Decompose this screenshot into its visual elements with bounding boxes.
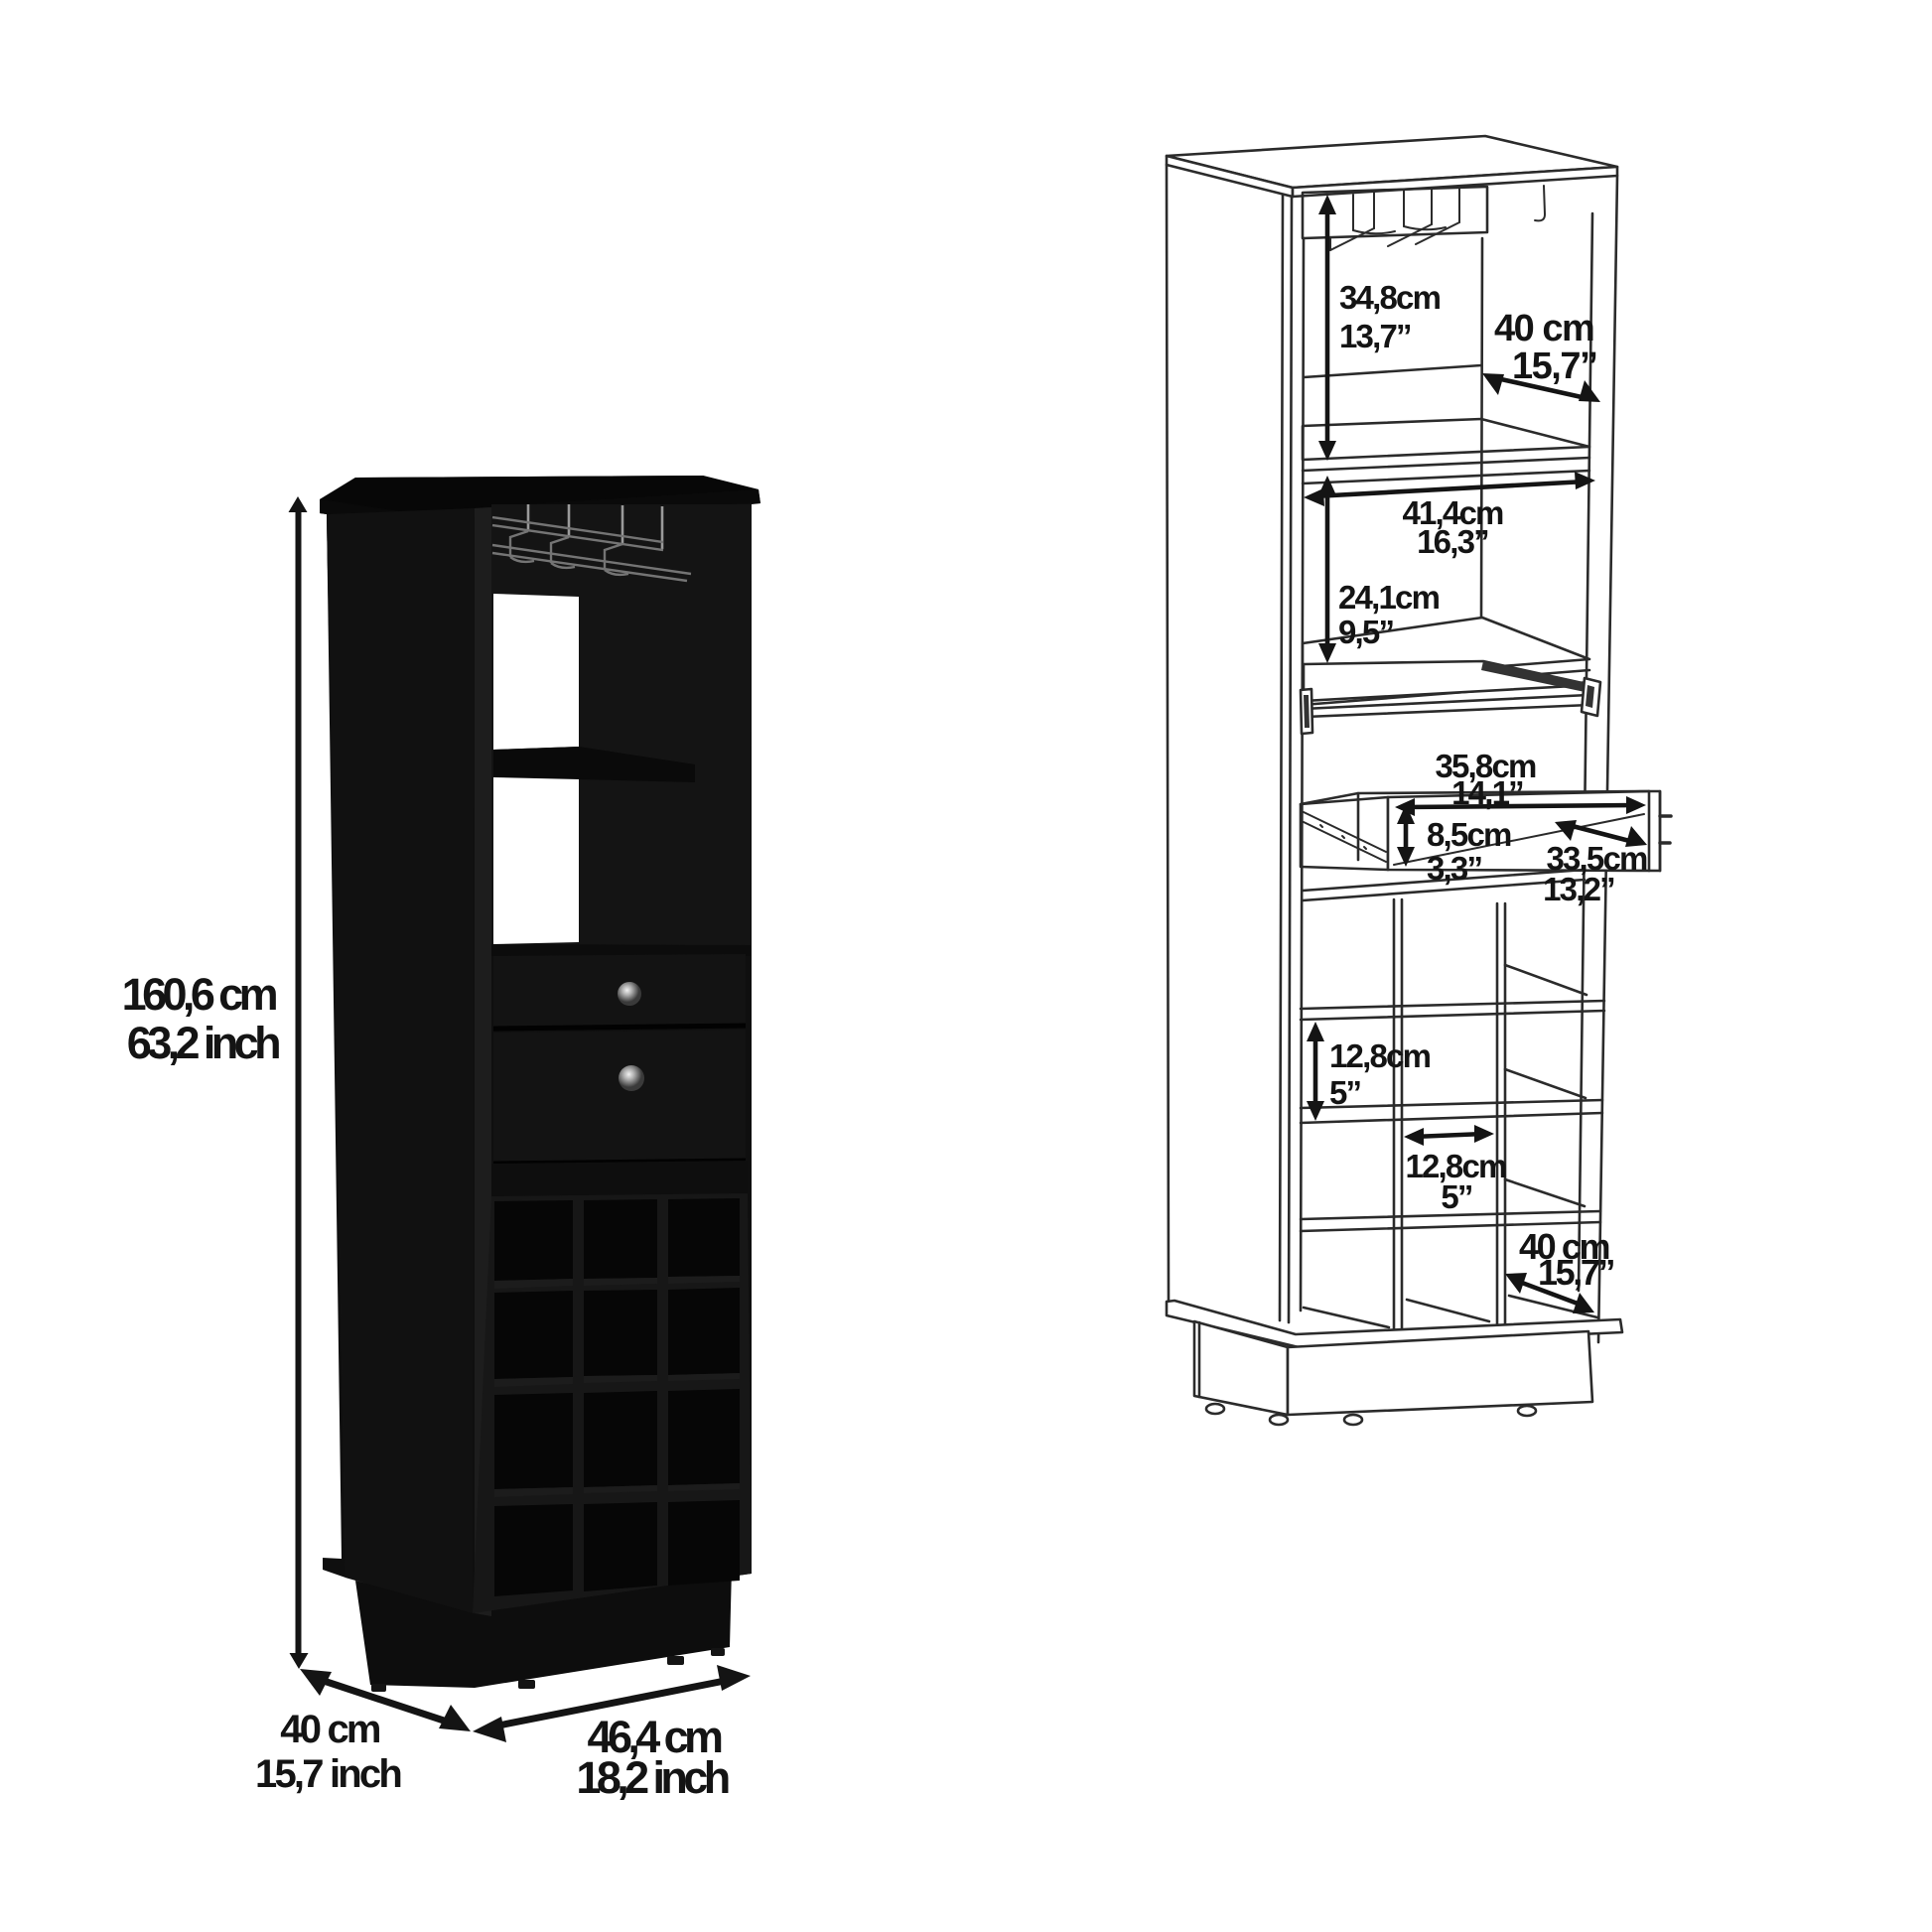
- svg-text:40 cm: 40 cm: [280, 1708, 380, 1751]
- svg-text:14,1”: 14,1”: [1451, 774, 1523, 811]
- svg-text:8,5cm: 8,5cm: [1427, 816, 1511, 853]
- svg-text:5”: 5”: [1329, 1074, 1361, 1111]
- svg-text:15,7”: 15,7”: [1512, 345, 1596, 387]
- svg-text:34,8cm: 34,8cm: [1339, 279, 1441, 316]
- svg-text:5”: 5”: [1441, 1178, 1472, 1215]
- svg-text:63,2 inch: 63,2 inch: [127, 1018, 279, 1068]
- svg-text:16,3”: 16,3”: [1417, 523, 1488, 560]
- svg-text:15,7”: 15,7”: [1538, 1252, 1613, 1293]
- svg-text:12,8cm: 12,8cm: [1329, 1037, 1431, 1074]
- svg-text:40 cm: 40 cm: [1494, 308, 1593, 349]
- svg-text:18,2 inch: 18,2 inch: [576, 1752, 728, 1803]
- svg-text:160,6 cm: 160,6 cm: [122, 969, 277, 1020]
- svg-text:24,1cm: 24,1cm: [1338, 579, 1440, 616]
- svg-text:15,7 inch: 15,7 inch: [255, 1752, 400, 1796]
- svg-text:13,7”: 13,7”: [1339, 318, 1411, 354]
- svg-text:9,5”: 9,5”: [1338, 614, 1393, 650]
- svg-text:13,2”: 13,2”: [1543, 871, 1614, 907]
- svg-text:3,3”: 3,3”: [1427, 850, 1481, 887]
